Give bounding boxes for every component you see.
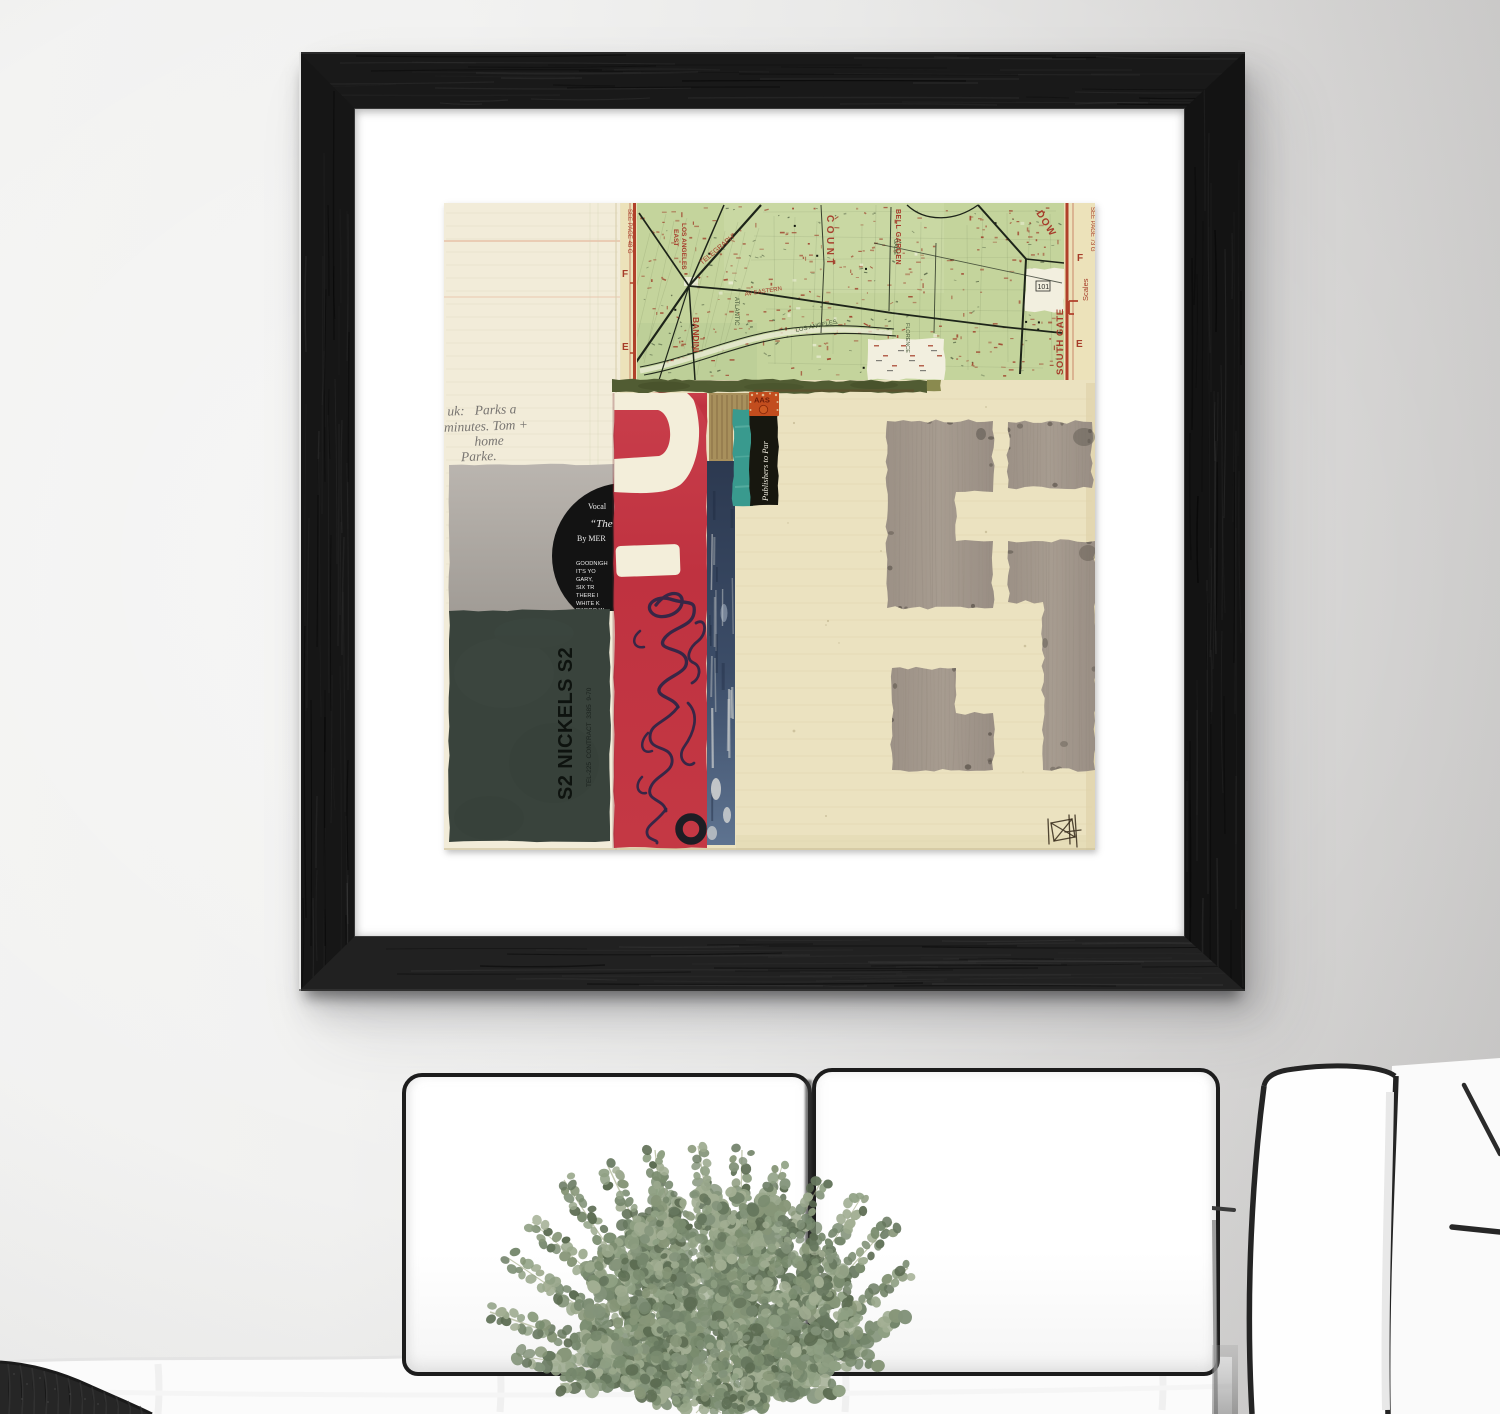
svg-text:S2 NICKELS S2: S2 NICKELS S2 (555, 647, 577, 800)
svg-text:uk: Parks a: uk: Parks a (447, 401, 517, 418)
svg-text:Parke.: Parke. (460, 448, 497, 464)
svg-text:THERE I: THERE I (576, 593, 599, 599)
svg-text:EAST: EAST (672, 229, 679, 246)
svg-text:101: 101 (1038, 284, 1050, 291)
svg-text:F: F (622, 269, 628, 280)
svg-text:FLORENCE: FLORENCE (904, 323, 910, 353)
svg-text:ATLANTIC: ATLANTIC (733, 297, 739, 326)
svg-text:GOODNIGH: GOODNIGH (576, 561, 608, 567)
svg-text:SEE PAGE 48 G: SEE PAGE 48 G (626, 209, 632, 254)
svg-text:AAS: AAS (754, 396, 770, 405)
svg-text:“The: “The (590, 518, 613, 530)
svg-text:GAGE: GAGE (892, 239, 898, 255)
svg-text:COUNT: COUNT (824, 215, 835, 268)
svg-text:Publishers to Par: Publishers to Par (760, 440, 770, 502)
svg-text:SEE PAGE 73 G: SEE PAGE 73 G (1089, 207, 1095, 252)
svg-text:WHITE K: WHITE K (576, 601, 600, 607)
svg-text:TEL-225 CONTRACT 3385 9-70: TEL-225 CONTRACT 3385 9-70 (586, 687, 593, 787)
svg-text:Scales: Scales (1081, 278, 1090, 301)
svg-text:IT'S YO: IT'S YO (576, 569, 596, 575)
svg-text:E: E (1076, 339, 1083, 350)
svg-text:minutes. Tom +: minutes. Tom + (444, 417, 528, 435)
svg-text:GARY,: GARY, (576, 577, 593, 583)
svg-text:BELL GARDEN: BELL GARDEN (894, 209, 901, 265)
svg-text:Vocal: Vocal (588, 502, 607, 511)
svg-text:By MER: By MER (577, 534, 606, 543)
svg-text:E: E (622, 342, 629, 353)
svg-text:BANDINI: BANDINI (691, 317, 701, 352)
svg-text:SIX TR: SIX TR (576, 585, 594, 591)
svg-text:F: F (1077, 253, 1083, 264)
svg-text:home: home (474, 433, 504, 449)
svg-text:LOS ANGELES: LOS ANGELES (680, 223, 687, 270)
